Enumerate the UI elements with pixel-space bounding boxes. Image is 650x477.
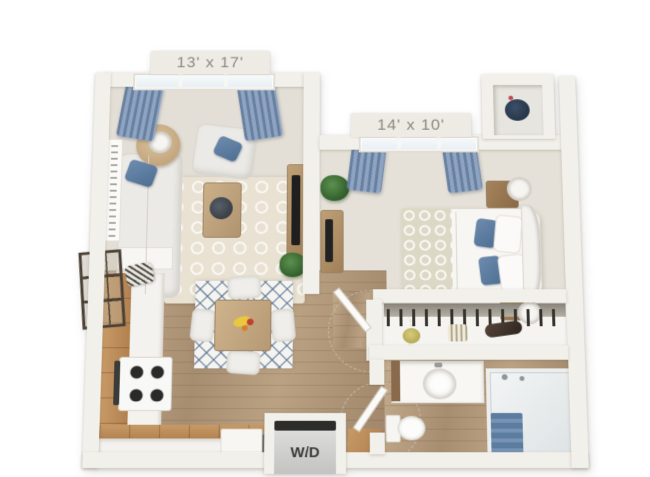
floor-plan-image: W/D <box>0 0 650 477</box>
living-window-mullion-1 <box>179 73 183 86</box>
washer-dryer-label: W/D <box>290 444 319 461</box>
vanity-wood-side <box>391 361 400 402</box>
nook-vase <box>505 99 530 121</box>
sink-faucet <box>434 363 442 368</box>
dining-chair-right <box>270 308 296 342</box>
plant-bedroom <box>320 175 349 201</box>
shower-valve <box>519 376 524 381</box>
fruit-apple-red <box>247 319 254 326</box>
toilet-bowl <box>397 416 425 440</box>
nook-vase-flower <box>508 96 513 100</box>
bathroom-sink <box>423 368 457 399</box>
living-window-mullion-2 <box>224 73 228 86</box>
washer-dryer-top <box>274 421 336 431</box>
closet-bathroom-wall <box>369 345 568 359</box>
bathroom-left-wall-upper <box>369 360 384 385</box>
nightstand-lamp-top <box>507 177 533 201</box>
closet-striped-basket <box>448 324 468 341</box>
shower-towel-blue <box>491 413 524 454</box>
stove-cooktop <box>118 357 173 411</box>
shower-head <box>502 374 508 380</box>
bathroom-left-wall-lower <box>370 433 385 455</box>
bedroom-window-mullion-1 <box>397 136 401 149</box>
closet-hanging-clothes <box>387 309 563 326</box>
bedroom-closet-divider-wall <box>373 289 566 302</box>
closet-round-basket <box>403 328 421 343</box>
fruit-orange <box>242 325 248 331</box>
living-room-dimensions-label: 13' x 17' <box>176 54 244 72</box>
bed-blanket-patterned <box>401 208 453 296</box>
bed-pillow-white-top <box>493 214 523 254</box>
bedroom-dimensions-label: 14' x 10' <box>377 116 445 134</box>
dining-chair-left <box>189 308 216 342</box>
bedroom-window <box>359 136 480 152</box>
dining-chair-top <box>227 275 261 300</box>
living-room-dimensions-tab: 13' x 17' <box>150 51 269 74</box>
tv-bedroom <box>325 219 333 262</box>
apartment-plan: W/D <box>52 50 612 475</box>
living-bedroom-divider-wall <box>303 73 320 294</box>
tv-living <box>291 175 300 245</box>
bedroom-dimensions-tab: 14' x 10' <box>351 114 471 137</box>
living-room-window <box>133 73 275 90</box>
bedroom-window-mullion-2 <box>437 136 441 149</box>
washer-dryer-unit: W/D <box>274 431 336 474</box>
dining-chair-bottom <box>226 350 261 375</box>
